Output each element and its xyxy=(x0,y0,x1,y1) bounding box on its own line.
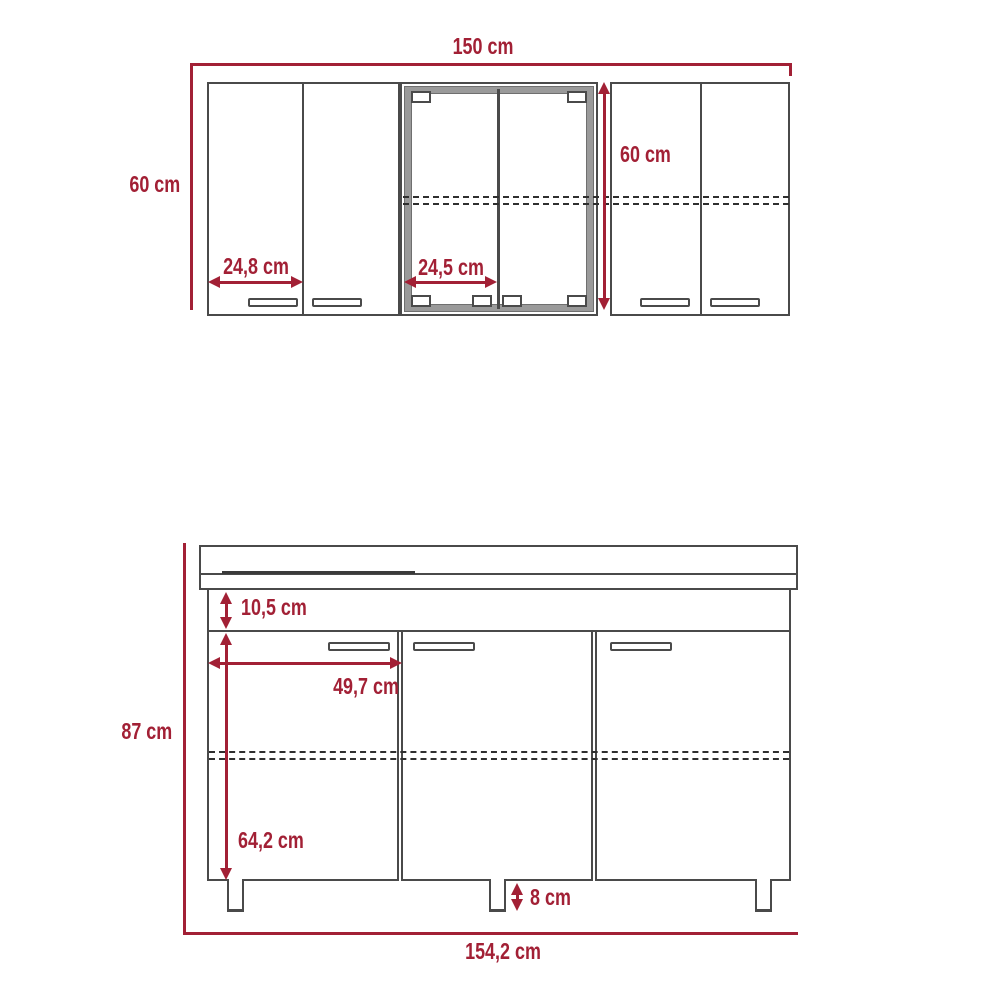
base-total-width-label: 154,2 cm xyxy=(465,938,541,965)
upper-glass-hinge-bottom-right xyxy=(567,295,587,307)
base-leg-right xyxy=(755,879,772,912)
upper-width-label: 150 cm xyxy=(453,33,514,60)
upper-left-door-arrow-head-left xyxy=(208,276,220,288)
upper-height-arrow-head-top xyxy=(598,82,610,94)
upper-door-right-2-handle xyxy=(710,298,760,307)
upper-left-door-width-label: 24,8 cm xyxy=(223,253,289,280)
cabinet-dimension-diagram: 150 cm 60 cm 60 cm 24,8 cm 24,5 cm xyxy=(0,0,1000,1000)
upper-glass-hinge-top-left xyxy=(411,91,431,103)
upper-shelf-dashed-line-1 xyxy=(403,196,789,198)
base-leg-left xyxy=(227,879,244,912)
upper-height-right-label: 60 cm xyxy=(620,141,671,168)
upper-center-door-arrow-head-left xyxy=(404,276,416,288)
base-door-width-arrow-head-right xyxy=(390,657,402,669)
base-door-height-arrow-line xyxy=(225,642,228,870)
upper-height-dimension-line xyxy=(190,63,193,310)
base-door-height-arrow-head-bottom xyxy=(220,868,232,880)
upper-height-left-label: 60 cm xyxy=(129,171,180,198)
base-door-3 xyxy=(595,630,791,881)
upper-door-right-2 xyxy=(700,82,790,316)
base-door-2-handle xyxy=(413,642,475,651)
base-total-height-label: 87 cm xyxy=(121,718,172,745)
base-width-dimension-line xyxy=(183,932,798,935)
countertop-accent-line xyxy=(222,571,415,574)
upper-glass-hinge-bottom-center-left xyxy=(472,295,492,307)
base-door-height-label: 64,2 cm xyxy=(238,827,304,854)
upper-glass-hinge-bottom-left xyxy=(411,295,431,307)
upper-left-door-arrow-line xyxy=(218,281,294,284)
upper-glass-hinge-top-right xyxy=(567,91,587,103)
upper-center-door-width-label: 24,5 cm xyxy=(418,254,484,281)
top-rail-arrow-head-bottom xyxy=(220,617,232,629)
base-shelf-dashed-line-1 xyxy=(209,751,789,753)
top-rail-height-label: 10,5 cm xyxy=(241,594,307,621)
upper-center-door-arrow-head-right xyxy=(485,276,497,288)
base-door-width-arrow-head-left xyxy=(208,657,220,669)
upper-door-left-1-handle xyxy=(248,298,298,307)
upper-width-dimension-line xyxy=(190,63,792,66)
upper-shelf-dashed-line-2 xyxy=(403,203,789,205)
base-door-width-label: 49,7 cm xyxy=(333,673,399,700)
upper-height-arrow-line xyxy=(603,90,606,304)
upper-door-left-2-handle xyxy=(312,298,362,307)
base-door-width-arrow-line xyxy=(218,662,392,665)
base-leg-center xyxy=(489,879,506,912)
leg-height-arrow-head-top xyxy=(511,883,523,895)
upper-width-dimension-end-tick xyxy=(789,63,792,76)
upper-glass-cabinet-divider xyxy=(497,89,500,309)
upper-door-right-1-handle xyxy=(640,298,690,307)
leg-height-label: 8 cm xyxy=(530,884,571,911)
upper-door-right-1 xyxy=(610,82,702,316)
top-rail-arrow-head-top xyxy=(220,592,232,604)
leg-height-arrow-head-bottom xyxy=(511,899,523,911)
upper-glass-hinge-bottom-center-right xyxy=(502,295,522,307)
base-door-1-handle xyxy=(328,642,390,651)
base-door-3-handle xyxy=(610,642,672,651)
upper-door-left-2 xyxy=(302,82,400,316)
base-height-dimension-line xyxy=(183,543,186,935)
upper-left-door-arrow-head-right xyxy=(291,276,303,288)
base-door-height-arrow-head-top xyxy=(220,633,232,645)
base-shelf-dashed-line-2 xyxy=(209,758,789,760)
upper-height-arrow-head-bottom xyxy=(598,298,610,310)
base-door-2 xyxy=(401,630,593,881)
upper-center-door-arrow-line xyxy=(414,281,487,284)
